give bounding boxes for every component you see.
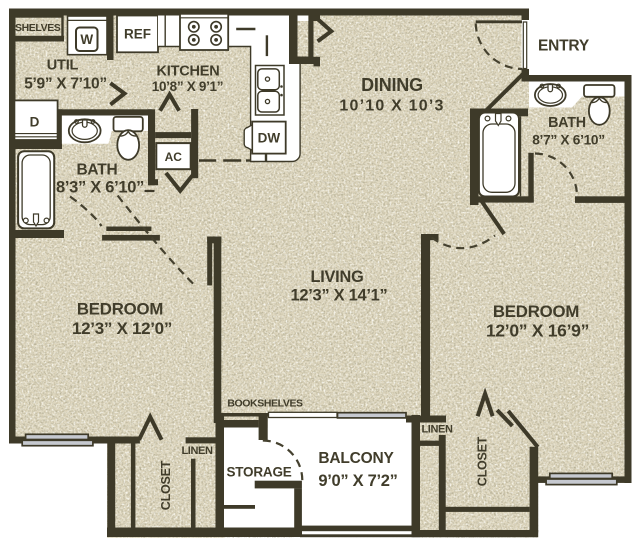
svg-text:10’10 X 10’3: 10’10 X 10’3 [339, 98, 444, 115]
svg-text:12’3” X 12’0”: 12’3” X 12’0” [72, 319, 172, 338]
svg-text:12’3” X 14’1”: 12’3” X 14’1” [290, 286, 387, 304]
svg-text:10’8” X 9’1”: 10’8” X 9’1” [152, 79, 223, 94]
svg-text:CLOSET: CLOSET [476, 436, 490, 486]
svg-text:SHELVES: SHELVES [15, 22, 61, 34]
svg-text:12’0” X 16’9”: 12’0” X 16’9” [486, 320, 589, 340]
svg-text:KITCHEN: KITCHEN [156, 64, 219, 80]
svg-text:8’3” X 6’10”: 8’3” X 6’10” [56, 178, 144, 196]
svg-text:5’9” X 7’10”: 5’9” X 7’10” [24, 76, 107, 93]
svg-text:DINING: DINING [361, 75, 423, 95]
svg-text:AC: AC [165, 150, 183, 164]
svg-text:LINEN: LINEN [421, 424, 452, 436]
svg-text:BOOKSHELVES: BOOKSHELVES [227, 398, 303, 410]
svg-text:DW: DW [258, 130, 281, 145]
svg-text:LIVING: LIVING [310, 268, 363, 286]
svg-text:UTIL: UTIL [47, 58, 79, 74]
svg-text:9’0” X 7’2”: 9’0” X 7’2” [318, 472, 397, 490]
svg-text:BEDROOM: BEDROOM [77, 300, 163, 319]
svg-text:STORAGE: STORAGE [226, 465, 291, 480]
svg-text:CLOSET: CLOSET [159, 460, 173, 510]
svg-text:BATH: BATH [76, 161, 117, 178]
svg-text:BALCONY: BALCONY [318, 450, 394, 467]
svg-text:D: D [30, 115, 40, 130]
svg-text:ENTRY: ENTRY [538, 38, 590, 55]
svg-text:W: W [80, 32, 93, 47]
svg-text:BEDROOM: BEDROOM [493, 302, 579, 321]
svg-text:LINEN: LINEN [181, 445, 212, 457]
svg-text:BATH: BATH [548, 115, 586, 131]
svg-text:8’7” X 6’10”: 8’7” X 6’10” [532, 132, 605, 147]
svg-text:REF: REF [124, 27, 151, 42]
